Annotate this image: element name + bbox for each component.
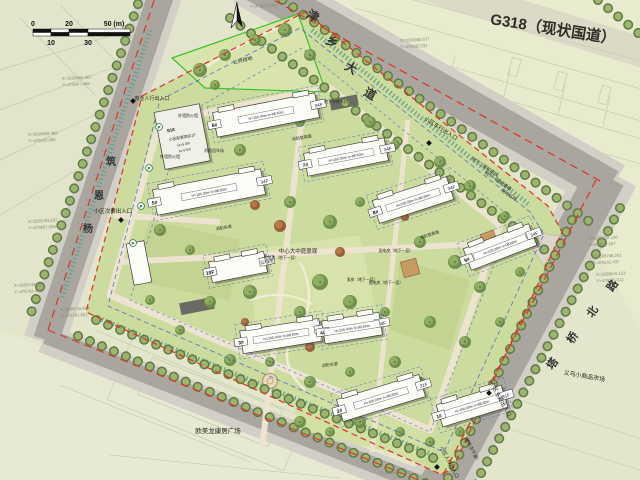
scale-tick: 0 [31,21,35,28]
scale-tick: 10 [47,40,55,47]
plan-label: 商业人行出入口 [134,95,169,102]
plan-label: 外墙防火墙 [178,112,198,118]
plan-label: 小区次要出入口 [94,207,133,215]
plan-label: 中心大中庭景观 [279,247,318,255]
parking-letter: P [147,166,150,171]
road-char: 恩 [94,190,104,202]
site-plan-drawing: 6#34FH=100.00m h=98.60m7#34FH=100.00m h=… [0,0,640,480]
plan-label: 地下车库入口 [324,98,348,104]
plan-label: 配电房（地下一层） [264,255,298,260]
plan-label: 配电房（地下一层） [379,248,413,253]
plan-label: 消防回车场 [204,147,224,153]
scale-tick: 50 (m) [104,21,125,28]
parking-letter: P [139,204,142,209]
plan-label: 欧美龙康居广场 [195,426,241,435]
coordinate-text: X=3358612.126 [380,470,410,475]
parking-letter: P [131,241,134,246]
scale-tick: 30 [84,40,92,47]
road-char: 筑 [106,155,116,168]
plan-label: 配电房（地下一层） [369,280,403,285]
parking-letter: P [157,125,160,130]
road-char: 杨 [83,222,93,235]
scale-tick: 20 [65,21,73,28]
plan-label: 外墙防火墙 [160,153,180,159]
master-plan-canvas: 6#34FH=100.00m h=98.60m7#34FH=100.00m h=… [0,0,640,480]
